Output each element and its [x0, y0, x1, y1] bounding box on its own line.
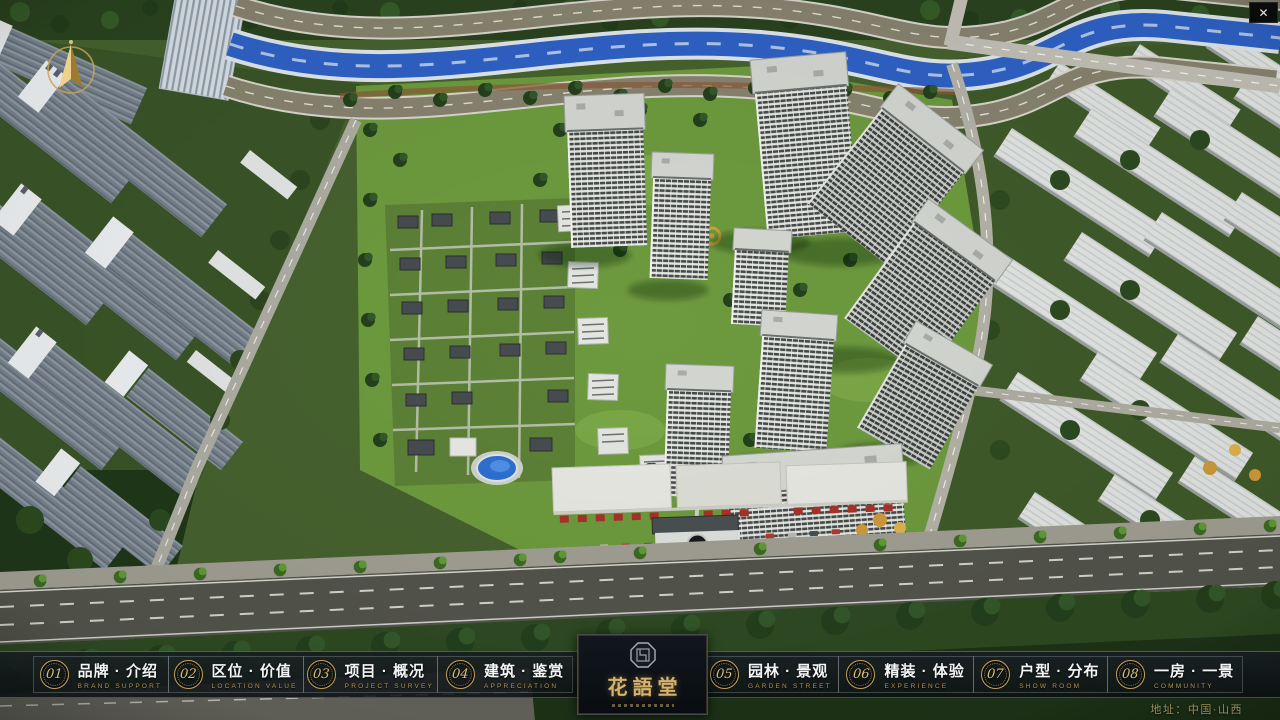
- logo-seal-icon: [630, 642, 656, 668]
- nav-group-left: 01 品牌 · 介绍 BRAND SUPPORT 02 区位 · 价值 LOCA…: [33, 652, 573, 697]
- nav-label-zh: 项目 · 概况: [345, 660, 425, 681]
- nav-item-architecture-appreciation[interactable]: 04 建筑 · 鉴赏 APPRECIATION: [437, 656, 573, 693]
- logo-subtitle-text: [612, 704, 674, 707]
- nav-label-zh: 建筑 · 鉴赏: [484, 660, 564, 681]
- nav-number-badge: 06: [846, 660, 875, 689]
- nav-label-en: SHOW ROOM: [1019, 683, 1081, 690]
- nav-number-badge: 02: [174, 660, 203, 689]
- logo-panel[interactable]: 花語堂: [577, 634, 708, 715]
- presentation-screen: ✕ 01 品牌 · 介绍 BRAND SUPPORT 02 区位 · 价值 LO…: [0, 0, 1280, 720]
- nav-number-badge: 01: [40, 660, 69, 689]
- nav-label-zh: 园林 · 景观: [748, 660, 828, 681]
- nav-label-en: APPRECIATION: [484, 683, 558, 690]
- nav-label-en: EXPERIENCE: [884, 683, 948, 690]
- nav-label-zh: 精装 · 体验: [884, 660, 964, 681]
- nav-number-badge: 07: [981, 660, 1010, 689]
- nav-number-badge: 05: [710, 660, 739, 689]
- nav-item-floorplan-distribution[interactable]: 07 户型 · 分布 SHOW ROOM: [973, 656, 1109, 693]
- nav-item-brand-intro[interactable]: 01 品牌 · 介绍 BRAND SUPPORT: [33, 656, 169, 693]
- nav-label-en: COMMUNITY: [1154, 683, 1214, 690]
- nav-label-en: GARDEN STREET: [748, 683, 832, 690]
- nav-label-en: PROJECT SURVEY: [345, 683, 434, 690]
- nav-label-en: BRAND SUPPORT: [78, 683, 162, 690]
- nav-label-zh: 区位 · 价值: [212, 660, 292, 681]
- nav-item-garden-landscape[interactable]: 05 园林 · 景观 GARDEN STREET: [703, 656, 839, 693]
- address-text: 地址：中国·山西: [1150, 701, 1243, 717]
- nav-label-en: LOCATION VALUE: [212, 683, 298, 690]
- nav-number-badge: 04: [446, 660, 475, 689]
- nav-number-badge: 08: [1116, 660, 1145, 689]
- nav-item-project-overview[interactable]: 03 项目 · 概况 PROJECT SURVEY: [303, 656, 439, 693]
- nav-label-zh: 品牌 · 介绍: [78, 660, 158, 681]
- nav-group-right: 05 园林 · 景观 GARDEN STREET 06 精装 · 体验 EXPE…: [703, 652, 1243, 697]
- nav-item-room-view[interactable]: 08 一房 · 一景 COMMUNITY: [1107, 656, 1243, 693]
- close-button[interactable]: ✕: [1249, 2, 1278, 23]
- logo-title: 花語堂: [603, 671, 683, 700]
- nav-number-badge: 03: [307, 660, 336, 689]
- nav-item-location-value[interactable]: 02 区位 · 价值 LOCATION VALUE: [168, 656, 304, 693]
- nav-label-zh: 一房 · 一景: [1154, 660, 1234, 681]
- aerial-site-render: [0, 0, 1280, 720]
- nav-label-zh: 户型 · 分布: [1019, 660, 1099, 681]
- nav-item-decor-experience[interactable]: 06 精装 · 体验 EXPERIENCE: [838, 656, 974, 693]
